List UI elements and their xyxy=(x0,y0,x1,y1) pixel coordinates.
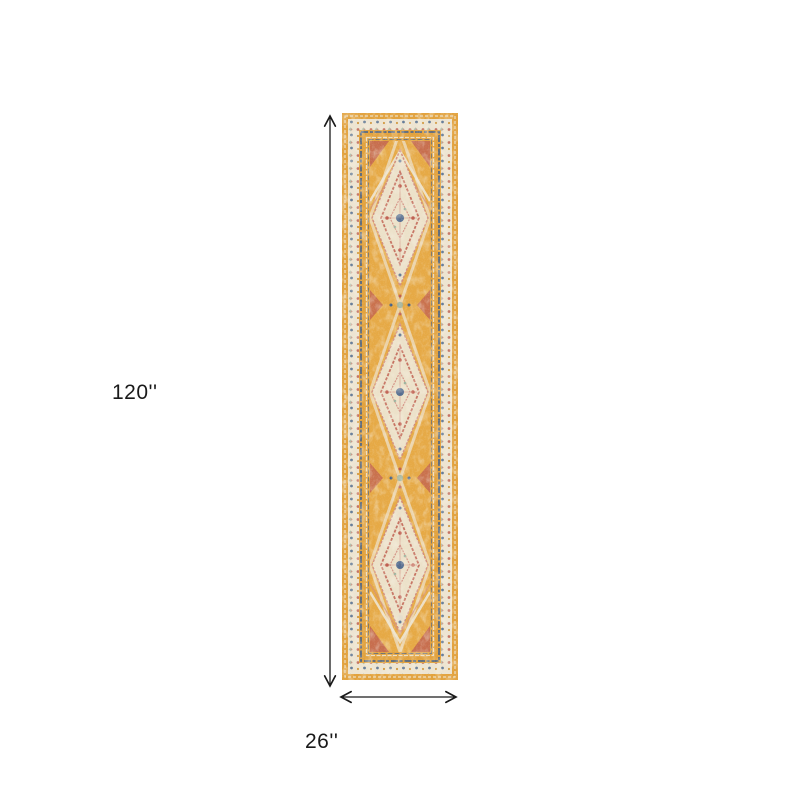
rug-image xyxy=(342,113,458,680)
height-dimension-label: 120'' xyxy=(112,382,158,403)
width-dimension-label: 26'' xyxy=(305,731,338,752)
product-dimension-diagram: 120'' 26'' xyxy=(0,0,800,800)
rug-distress-texture xyxy=(342,113,458,680)
